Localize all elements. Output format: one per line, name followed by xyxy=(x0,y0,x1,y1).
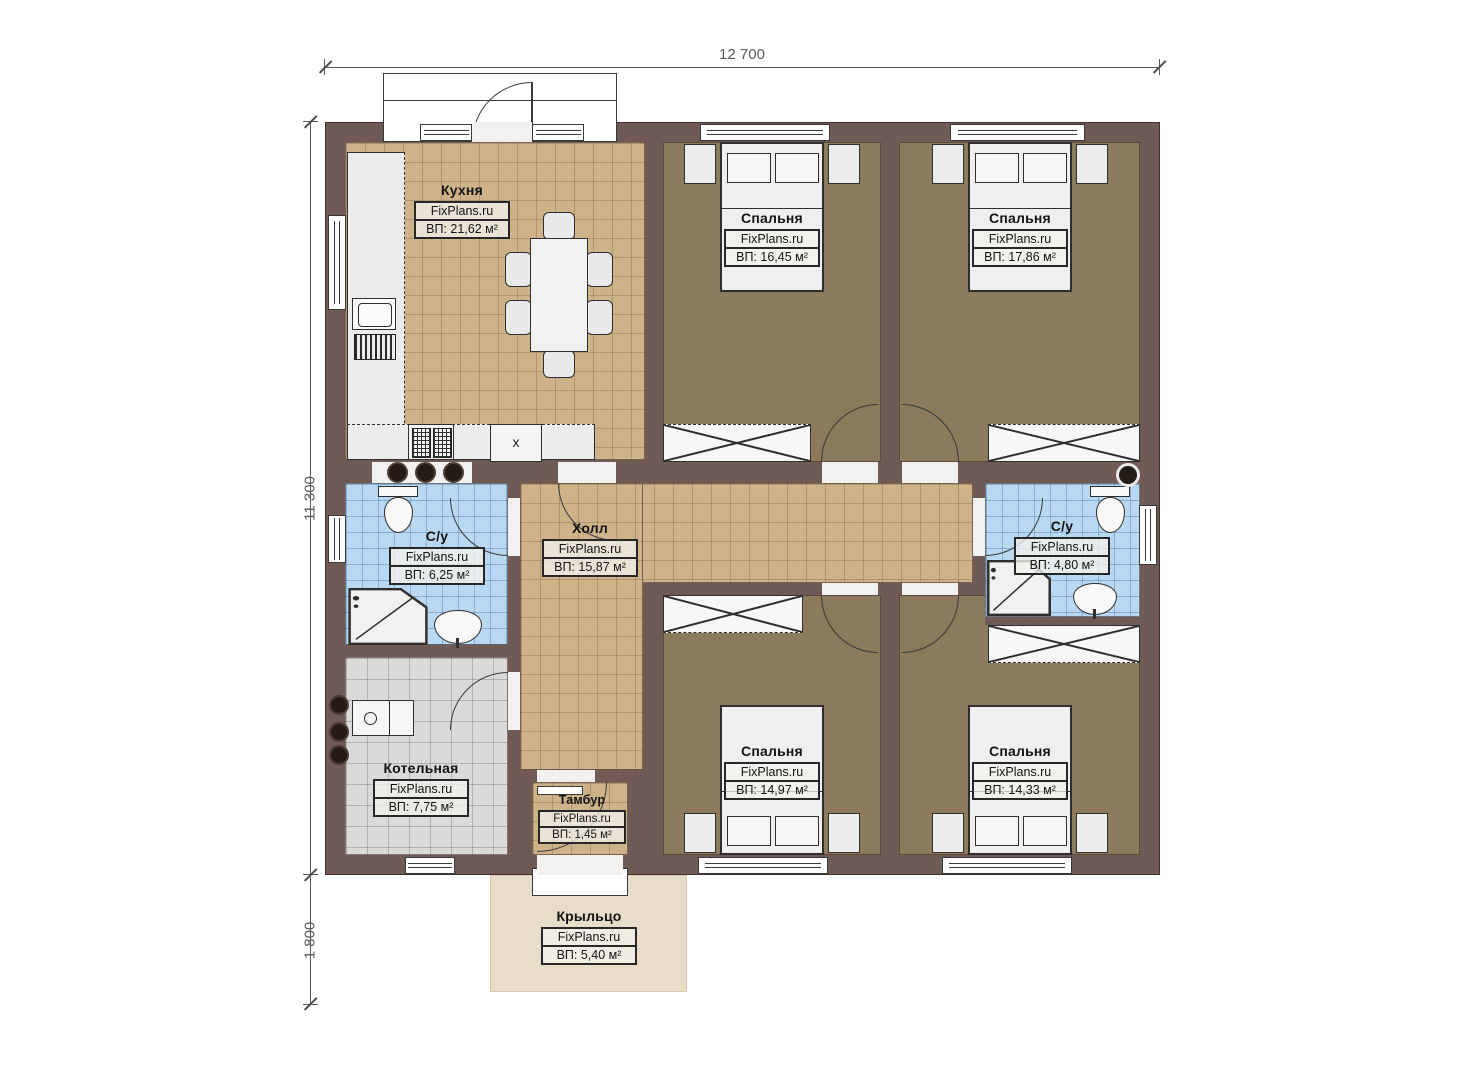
room-name: Холл xyxy=(542,520,638,536)
kitchen-wall-knob xyxy=(387,462,408,483)
dining-chair xyxy=(586,300,613,335)
dimension-width-label: 12 700 xyxy=(719,46,765,63)
area-label: ВП: 15,87 м² xyxy=(544,559,636,575)
bathroom-left-door-opening xyxy=(508,498,520,556)
room-name: С/у xyxy=(389,528,485,544)
room-label-bedroom-top-left: Спальня FixPlans.ru ВП: 16,45 м² xyxy=(724,210,820,267)
bedroom-bottom-left-window xyxy=(698,857,828,874)
brand-label: FixPlans.ru xyxy=(726,231,818,249)
nightstand xyxy=(932,813,964,853)
room-info-box: FixPlans.ru ВП: 21,62 м² xyxy=(414,201,510,239)
kitchen-sidelight-window xyxy=(532,124,584,141)
room-info-box: FixPlans.ru ВП: 17,86 м² xyxy=(972,229,1068,267)
room-label-bedroom-bottom-left: Спальня FixPlans.ru ВП: 14,97 м² xyxy=(724,743,820,800)
bedroom-top-left-door-opening xyxy=(822,462,878,483)
boiler-door-opening xyxy=(508,672,520,730)
room-info-box: FixPlans.ru ВП: 5,40 м² xyxy=(541,927,637,965)
area-label: ВП: 14,97 м² xyxy=(726,782,818,798)
area-label: ВП: 17,86 м² xyxy=(974,249,1066,265)
floor-plan-canvas: 12 700 11 300 1 800 xyxy=(0,0,1473,1080)
kitchen-hall-door-opening xyxy=(558,462,616,483)
area-label: ВП: 5,40 м² xyxy=(543,947,635,963)
brand-label: FixPlans.ru xyxy=(416,203,508,221)
shower-stall xyxy=(348,588,428,645)
nightstand xyxy=(932,144,964,184)
rear-door-opening xyxy=(472,122,532,142)
boiler-window xyxy=(405,857,455,874)
room-name: Спальня xyxy=(972,743,1068,759)
area-label: ВП: 14,33 м² xyxy=(974,782,1066,798)
bedroom-bottom-right-door-opening xyxy=(902,583,958,595)
nightstand xyxy=(684,813,716,853)
boiler-unit xyxy=(352,700,414,736)
room-label-bath-right: С/у FixPlans.ru ВП: 4,80 м² xyxy=(1014,518,1110,575)
kitchen-counter-bottom xyxy=(347,424,595,460)
kitchen-sink-basin xyxy=(358,303,392,327)
nightstand xyxy=(1076,144,1108,184)
room-info-box: FixPlans.ru ВП: 1,45 м² xyxy=(538,810,626,844)
room-name: Котельная xyxy=(373,760,469,776)
kitchen-stove-burners xyxy=(412,428,431,458)
brand-label: FixPlans.ru xyxy=(1016,539,1108,557)
bathroom-right-door-opening xyxy=(973,498,985,556)
fridge-mark: x xyxy=(513,434,520,450)
dimension-line-top xyxy=(325,67,1160,68)
nightstand xyxy=(1076,813,1108,853)
dining-chair xyxy=(505,300,532,335)
kitchen-fridge: x xyxy=(490,424,542,462)
kitchen-wall-knob xyxy=(443,462,464,483)
boiler-wall-knob xyxy=(329,695,349,715)
room-label-porch: Крыльцо FixPlans.ru ВП: 5,40 м² xyxy=(541,908,637,965)
room-label-kitchen: Кухня FixPlans.ru ВП: 21,62 м² xyxy=(414,182,510,239)
room-label-boiler: Котельная FixPlans.ru ВП: 7,75 м² xyxy=(373,760,469,817)
area-label: ВП: 16,45 м² xyxy=(726,249,818,265)
dimension-height-label: 11 300 xyxy=(302,457,319,541)
room-label-bedroom-top-right: Спальня FixPlans.ru ВП: 17,86 м² xyxy=(972,210,1068,267)
brand-label: FixPlans.ru xyxy=(375,781,467,799)
area-label: ВП: 21,62 м² xyxy=(416,221,508,237)
room-name: Тамбур xyxy=(538,793,626,807)
brand-label: FixPlans.ru xyxy=(543,929,635,947)
bedroom-top-right-window xyxy=(950,124,1085,141)
boiler-wall-knob xyxy=(329,745,349,765)
nightstand xyxy=(828,144,860,184)
area-label: ВП: 7,75 м² xyxy=(375,799,467,815)
kitchen-sidelight-window xyxy=(420,124,472,141)
toilet-tank xyxy=(1090,486,1130,497)
area-label: ВП: 1,45 м² xyxy=(540,828,624,842)
brand-label: FixPlans.ru xyxy=(391,549,483,567)
ventilation-fan xyxy=(1116,463,1140,487)
bedroom-bottom-left-door-opening xyxy=(822,583,878,595)
room-name: Спальня xyxy=(724,210,820,226)
dimension-porch-label: 1 800 xyxy=(302,899,319,983)
room-info-box: FixPlans.ru ВП: 6,25 м² xyxy=(389,547,485,585)
entrance-door-opening xyxy=(537,855,623,875)
kitchen-side-window xyxy=(328,215,346,310)
room-name: С/у xyxy=(1014,518,1110,534)
dining-chair xyxy=(505,252,532,287)
dining-table xyxy=(530,238,588,352)
room-info-box: FixPlans.ru ВП: 15,87 м² xyxy=(542,539,638,577)
wardrobe xyxy=(988,424,1140,462)
nightstand xyxy=(684,144,716,184)
room-info-box: FixPlans.ru ВП: 7,75 м² xyxy=(373,779,469,817)
room-label-vestibule: Тамбур FixPlans.ru ВП: 1,45 м² xyxy=(538,793,626,844)
kitchen-wall-knob xyxy=(415,462,436,483)
room-name: Спальня xyxy=(972,210,1068,226)
wardrobe xyxy=(663,595,803,633)
bedroom-top-right-door-opening xyxy=(902,462,958,483)
area-label: ВП: 6,25 м² xyxy=(391,567,483,583)
brand-label: FixPlans.ru xyxy=(974,231,1066,249)
bathroom-right-bottom-wall xyxy=(985,617,1140,625)
room-label-bath-left: С/у FixPlans.ru ВП: 6,25 м² xyxy=(389,528,485,585)
dining-chair xyxy=(586,252,613,287)
kitchen-stove-burners xyxy=(433,428,452,458)
bedroom-top-left-window xyxy=(700,124,830,141)
wardrobe xyxy=(988,625,1140,663)
boiler-wall-knob xyxy=(329,722,349,742)
bedroom-bottom-right-window xyxy=(942,857,1072,874)
room-name: Кухня xyxy=(414,182,510,198)
room-label-bedroom-bottom-right: Спальня FixPlans.ru ВП: 14,33 м² xyxy=(972,743,1068,800)
nightstand xyxy=(828,813,860,853)
brand-label: FixPlans.ru xyxy=(974,764,1066,782)
room-name: Спальня xyxy=(724,743,820,759)
kitchen-drying-rack xyxy=(354,334,396,360)
area-label: ВП: 4,80 м² xyxy=(1016,557,1108,573)
toilet-tank xyxy=(378,486,418,497)
brand-label: FixPlans.ru xyxy=(540,812,624,828)
room-info-box: FixPlans.ru ВП: 16,45 м² xyxy=(724,229,820,267)
sink-tap xyxy=(456,638,459,648)
dining-chair xyxy=(543,350,575,378)
brand-label: FixPlans.ru xyxy=(726,764,818,782)
room-info-box: FixPlans.ru ВП: 14,33 м² xyxy=(972,762,1068,800)
vestibule-door-opening xyxy=(537,770,595,782)
bathroom-right-window xyxy=(1139,505,1157,565)
wardrobe xyxy=(663,424,811,462)
brand-label: FixPlans.ru xyxy=(544,541,636,559)
bathroom-left-window xyxy=(328,515,346,563)
room-info-box: FixPlans.ru ВП: 4,80 м² xyxy=(1014,537,1110,575)
sink-tap xyxy=(1093,609,1096,619)
dining-chair xyxy=(543,212,575,240)
room-name: Крыльцо xyxy=(541,908,637,924)
room-info-box: FixPlans.ru ВП: 14,97 м² xyxy=(724,762,820,800)
room-label-hall: Холл FixPlans.ru ВП: 15,87 м² xyxy=(542,520,638,577)
